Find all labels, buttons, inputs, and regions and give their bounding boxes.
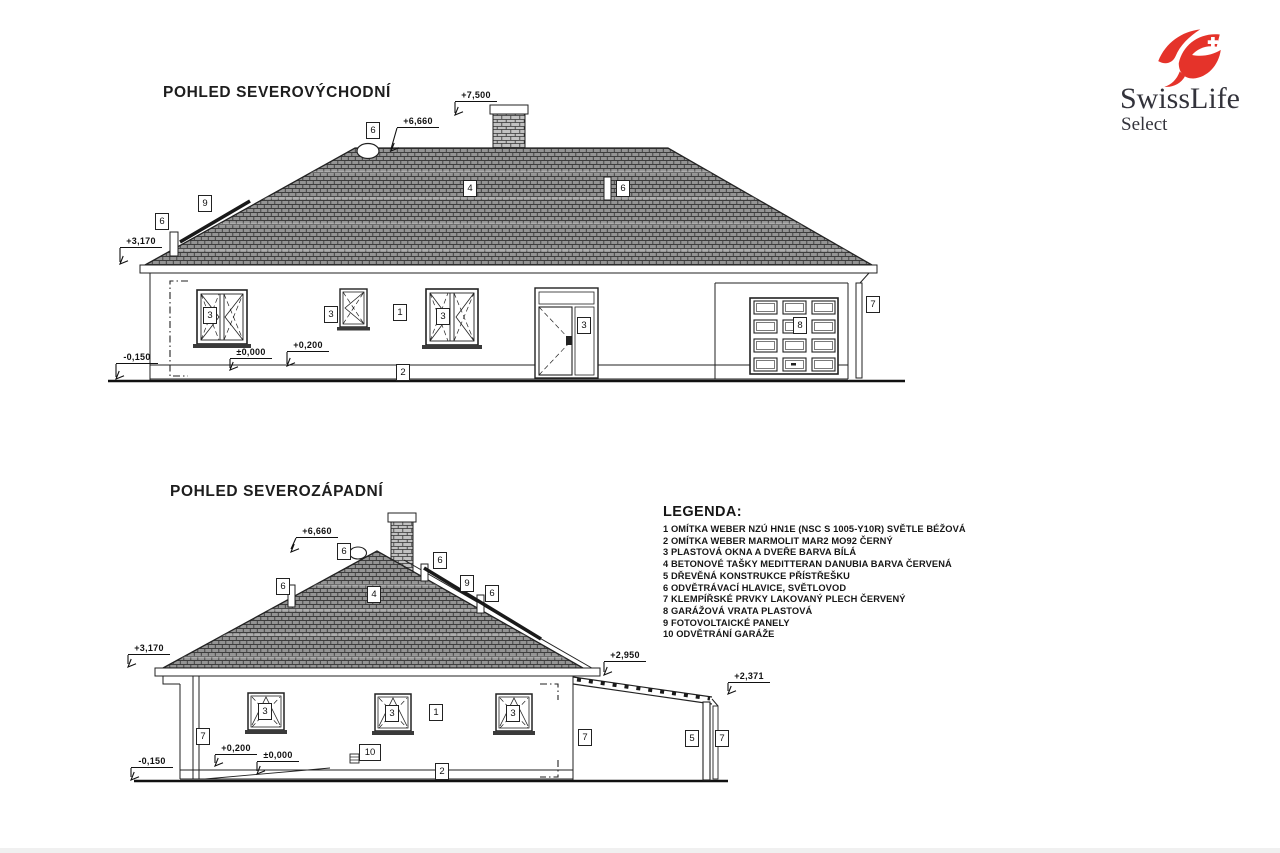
legend-item: 10 ODVĚTRÁNÍ GARÁŽE bbox=[663, 629, 966, 641]
view2-hidden-outline bbox=[540, 684, 558, 777]
ref-marker: 3 bbox=[385, 705, 399, 722]
ref-marker: 6 bbox=[616, 180, 630, 197]
ref-marker: 6 bbox=[276, 578, 290, 595]
scan-edge bbox=[0, 848, 1280, 853]
ref-marker: 2 bbox=[396, 364, 410, 381]
ref-marker: 6 bbox=[155, 213, 169, 230]
ref-marker: 3 bbox=[258, 703, 272, 720]
view1-elevation bbox=[108, 102, 905, 381]
elevation-label: +3,170 bbox=[128, 643, 170, 655]
ref-marker: 2 bbox=[435, 763, 449, 780]
view1-skylight-dome bbox=[357, 144, 379, 159]
view2-plinth bbox=[180, 770, 573, 779]
view1-title: POHLED SEVEROVÝCHODNÍ bbox=[163, 84, 391, 102]
legend-item: 8 GARÁŽOVÁ VRATA PLASTOVÁ bbox=[663, 606, 966, 618]
view2-soffit bbox=[163, 676, 180, 684]
ref-marker: 3 bbox=[577, 317, 591, 334]
elevation-label: +2,950 bbox=[604, 650, 646, 662]
ref-marker: 8 bbox=[793, 317, 807, 334]
view1-downspout bbox=[856, 283, 862, 378]
elevation-label: +0,200 bbox=[287, 340, 329, 352]
legend-item: 9 FOTOVOLTAICKÉ PANELY bbox=[663, 618, 966, 630]
view2-skylight-dome bbox=[350, 547, 367, 559]
legend-item: 4 BETONOVÉ TAŠKY MEDITTERAN DANUBIA BARV… bbox=[663, 559, 966, 571]
elevation-label: ±0,000 bbox=[230, 347, 272, 359]
ref-marker: 7 bbox=[866, 296, 880, 313]
view2-carport bbox=[573, 677, 718, 780]
view1-garage-door bbox=[750, 298, 838, 374]
elevation-label: ±0,000 bbox=[257, 750, 299, 762]
ref-marker: 10 bbox=[359, 744, 381, 761]
elevation-label: +6,660 bbox=[296, 526, 338, 538]
elevation-drawings bbox=[0, 0, 1280, 853]
view2-elevation bbox=[128, 513, 736, 781]
view1-gutter bbox=[140, 265, 877, 273]
ref-marker: 1 bbox=[429, 704, 443, 721]
view2-carport-post bbox=[703, 702, 710, 780]
view1-walls bbox=[150, 273, 848, 380]
ref-marker: 4 bbox=[367, 586, 381, 603]
ref-marker: 4 bbox=[463, 180, 477, 197]
view1-window-1 bbox=[193, 290, 251, 348]
elevation-label: +2,371 bbox=[728, 671, 770, 683]
ref-marker: 9 bbox=[198, 195, 212, 212]
elevation-label: +7,500 bbox=[455, 90, 497, 102]
view1-plinth bbox=[150, 365, 848, 379]
elevation-label: -0,150 bbox=[116, 352, 158, 364]
legend-title: LEGENDA: bbox=[663, 504, 966, 520]
ref-marker: 3 bbox=[324, 306, 338, 323]
view1-vent-pipe bbox=[170, 232, 178, 256]
swisslife-swoosh-icon bbox=[1148, 24, 1230, 90]
elevation-label: +6,660 bbox=[397, 116, 439, 128]
view1-chimney bbox=[490, 105, 528, 149]
view1-roof-vent bbox=[604, 177, 611, 200]
legend-item: 3 PLASTOVÁ OKNA A DVEŘE BARVA BÍLÁ bbox=[663, 547, 966, 559]
legend-item: 2 OMÍTKA WEBER MARMOLIT MAR2 MO92 ČERNÝ bbox=[663, 536, 966, 548]
legend-item: 6 ODVĚTRÁVACÍ HLAVICE, SVĚTLOVOD bbox=[663, 583, 966, 595]
legend-item: 7 KLEMPÍŘSKÉ PRVKY LAKOVANÝ PLECH ČERVEN… bbox=[663, 594, 966, 606]
view1-roof bbox=[145, 148, 872, 265]
view2-title: POHLED SEVEROZÁPADNÍ bbox=[170, 483, 383, 501]
view2-garage-vent bbox=[350, 754, 359, 763]
ref-marker: 7 bbox=[715, 730, 729, 747]
legend-item: 1 OMÍTKA WEBER NZÚ HN1E (NSC S 1005-Y10R… bbox=[663, 524, 966, 536]
ref-marker: 6 bbox=[485, 585, 499, 602]
logo-brand-text: SwissLife bbox=[1120, 82, 1240, 116]
ref-marker: 7 bbox=[578, 729, 592, 746]
ref-marker: 1 bbox=[393, 304, 407, 321]
ref-marker: 6 bbox=[433, 552, 447, 569]
view2-gutter bbox=[155, 668, 600, 676]
view2-vent-pipe-mid bbox=[421, 564, 428, 581]
ref-marker: 5 bbox=[685, 730, 699, 747]
logo-sub-text: Select bbox=[1121, 114, 1167, 136]
ref-marker: 3 bbox=[203, 307, 217, 324]
elevation-label: -0,150 bbox=[131, 756, 173, 768]
ref-marker: 9 bbox=[460, 575, 474, 592]
ref-marker: 7 bbox=[196, 728, 210, 745]
ref-marker: 3 bbox=[506, 705, 520, 722]
ref-marker: 6 bbox=[337, 543, 351, 560]
view1-window-3 bbox=[422, 289, 482, 349]
elevation-label: +0,200 bbox=[215, 743, 257, 755]
view1-window-2 bbox=[337, 289, 370, 331]
elevation-label: +3,170 bbox=[120, 236, 162, 248]
drawing-canvas: POHLED SEVEROVÝCHODNÍ POHLED SEVEROZÁPAD… bbox=[0, 0, 1280, 853]
ref-marker: 6 bbox=[366, 122, 380, 139]
legend-item: 5 DŘEVĚNÁ KONSTRUKCE PŘÍSTŘEŠKU bbox=[663, 571, 966, 583]
legend: LEGENDA: 1 OMÍTKA WEBER NZÚ HN1E (NSC S … bbox=[663, 504, 966, 641]
view1-hidden-outline bbox=[170, 281, 188, 376]
ref-marker: 3 bbox=[436, 308, 450, 325]
